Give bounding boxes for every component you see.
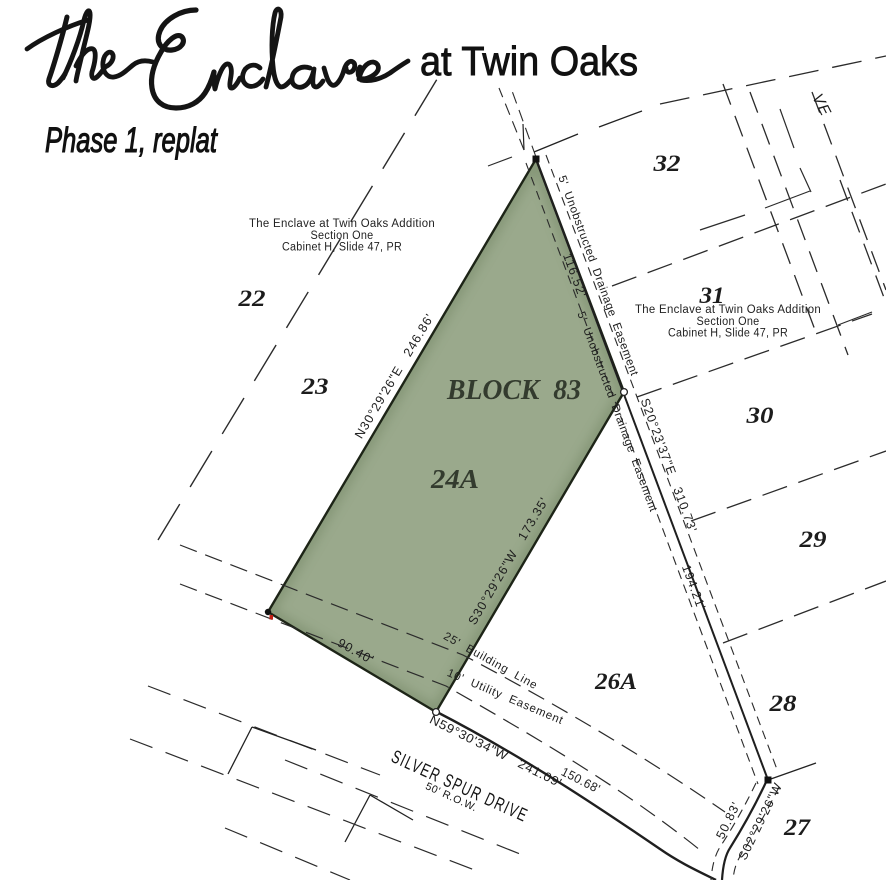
svg-text:24A: 24A [430, 464, 479, 494]
svg-text:The Enclave at Twin Oaks: The Enclave at Twin Oaks Addition [249, 218, 435, 230]
svg-text:27: 27 [783, 815, 812, 840]
svg-text:Section One: Section One [311, 230, 374, 242]
svg-text:Section One: Section One [697, 316, 760, 328]
svg-text:28: 28 [768, 691, 797, 716]
svg-text:at Twin Oaks: at Twin Oaks [420, 38, 638, 84]
svg-text:26A: 26A [594, 669, 637, 694]
svg-text:23: 23 [300, 374, 328, 399]
svg-text:32: 32 [652, 151, 680, 176]
svg-text:29: 29 [798, 527, 827, 552]
svg-text:BLOCK 83: BLOCK 83 [446, 375, 581, 406]
svg-text:Cabinet H, Slide 47, PR: Cabinet H, Slide 47, PR [668, 328, 788, 340]
svg-text:22: 22 [237, 286, 265, 311]
svg-text:Phase 1, replat: Phase 1, replat [45, 121, 218, 160]
svg-text:The Enclave at Twin Oaks: The Enclave at Twin Oaks Addition [635, 304, 821, 316]
svg-text:Cabinet H, Slide 47, PR: Cabinet H, Slide 47, PR [282, 242, 402, 254]
svg-text:30: 30 [745, 403, 774, 428]
